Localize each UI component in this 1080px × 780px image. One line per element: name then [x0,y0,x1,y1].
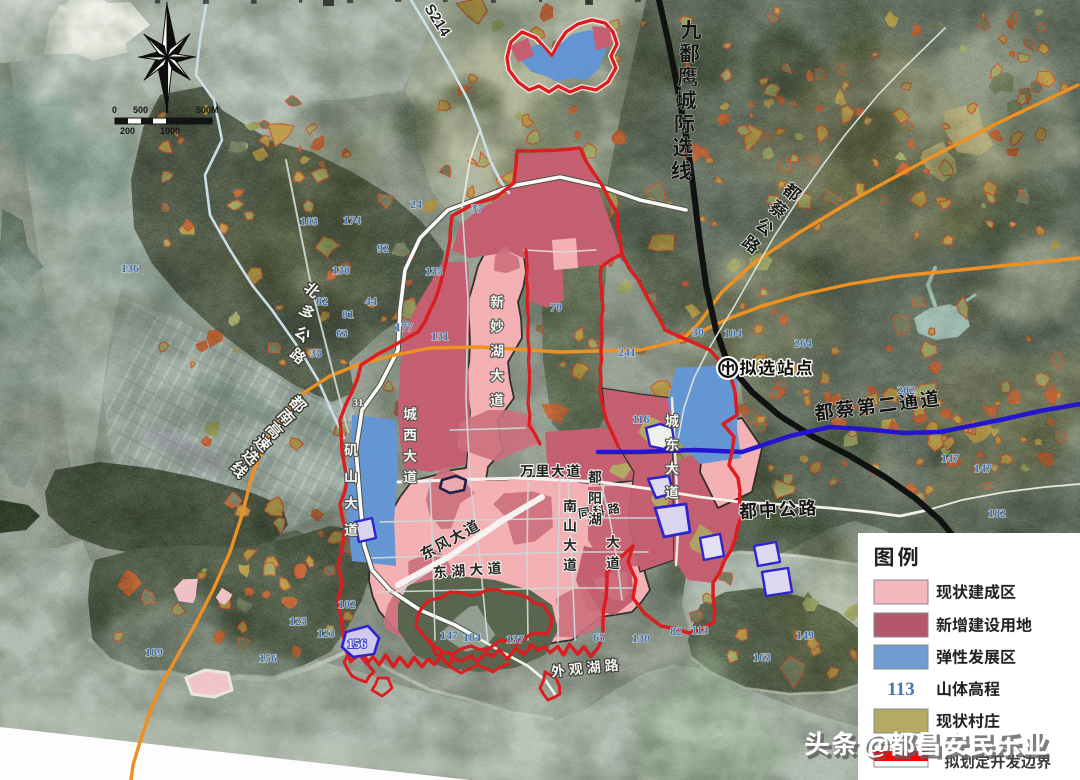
svg-text:113: 113 [887,679,914,700]
svg-text:@: @ [862,728,889,759]
